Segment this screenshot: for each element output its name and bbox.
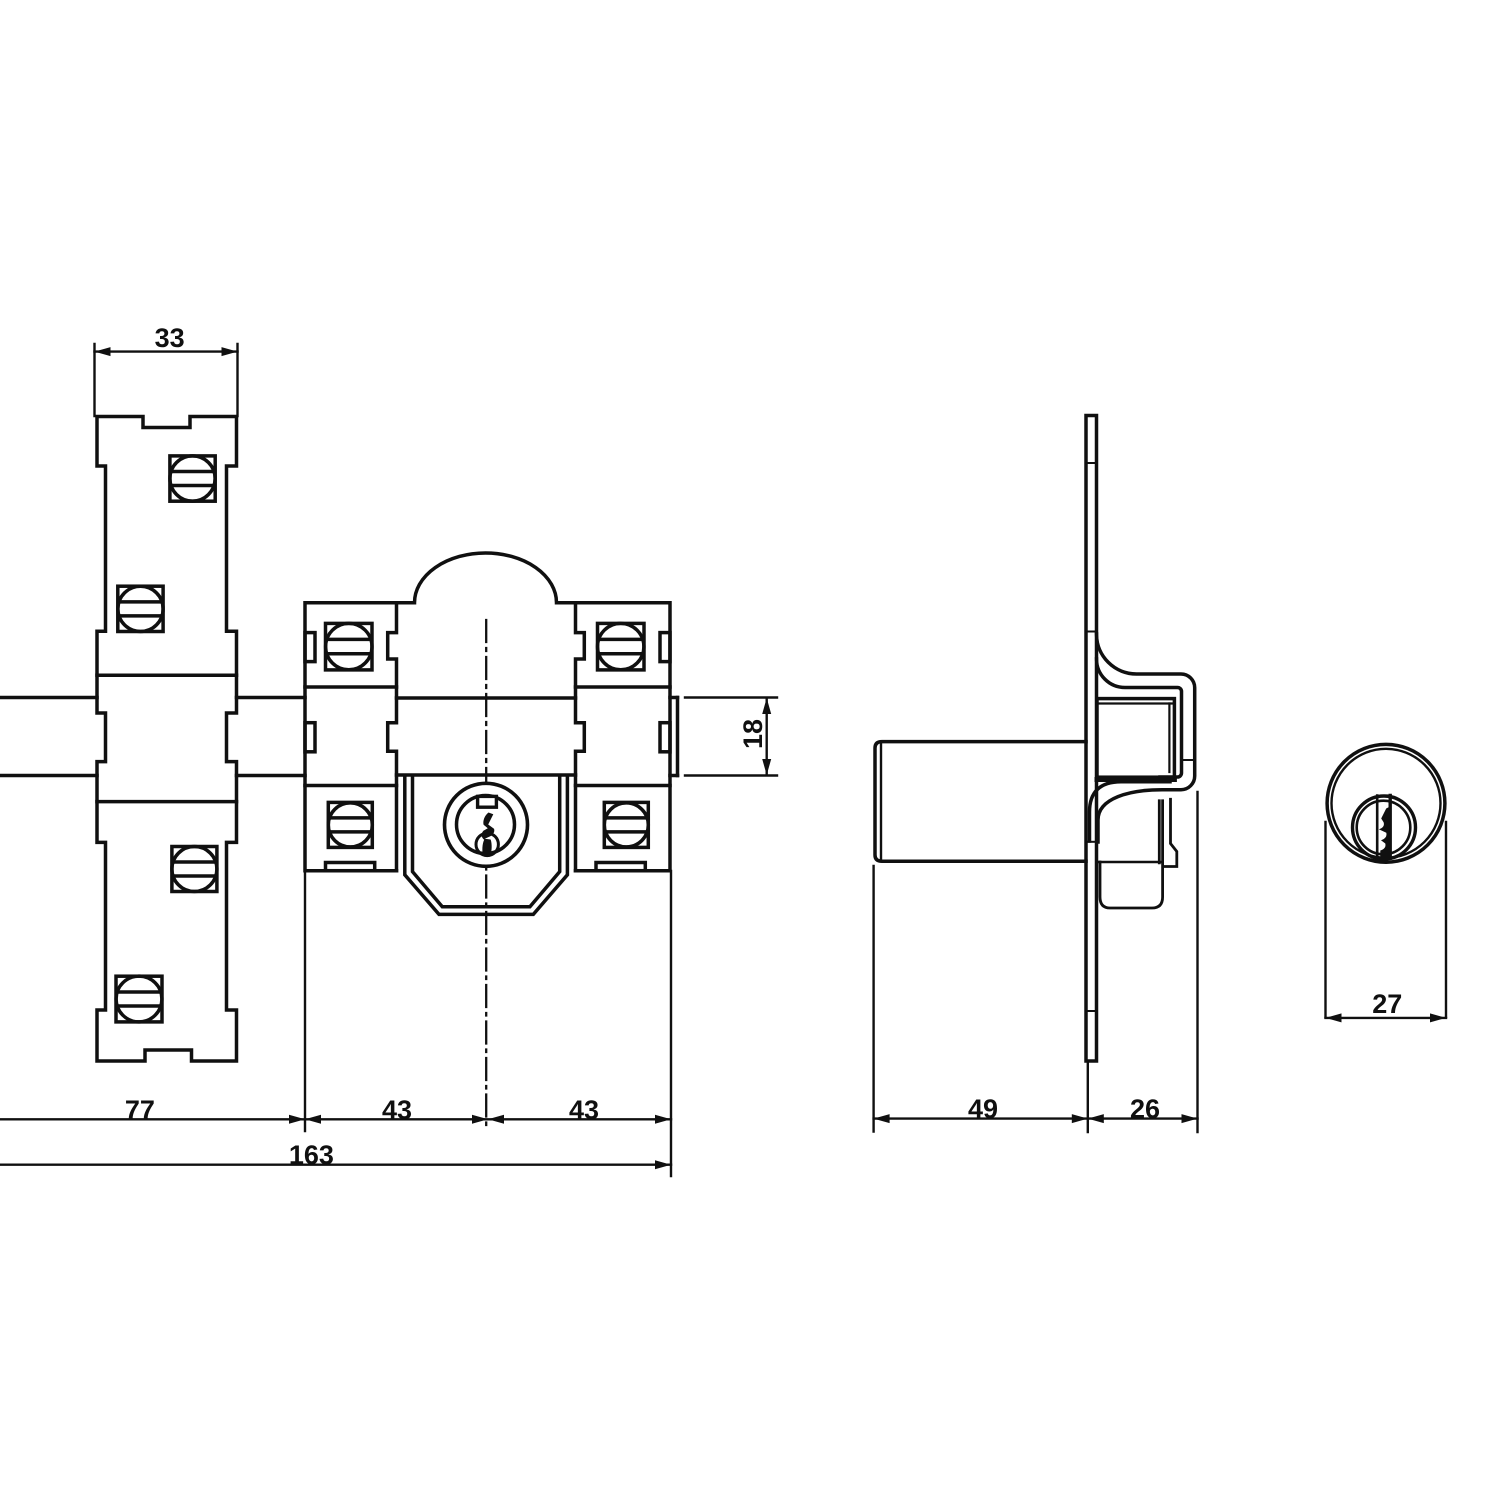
svg-text:33: 33 (155, 323, 185, 353)
svg-text:77: 77 (125, 1095, 155, 1125)
svg-text:43: 43 (569, 1095, 599, 1125)
svg-text:163: 163 (289, 1140, 334, 1170)
svg-text:43: 43 (382, 1095, 412, 1125)
svg-text:49: 49 (968, 1094, 998, 1124)
svg-text:18: 18 (738, 719, 768, 749)
svg-text:26: 26 (1130, 1094, 1160, 1124)
svg-text:27: 27 (1372, 989, 1402, 1019)
